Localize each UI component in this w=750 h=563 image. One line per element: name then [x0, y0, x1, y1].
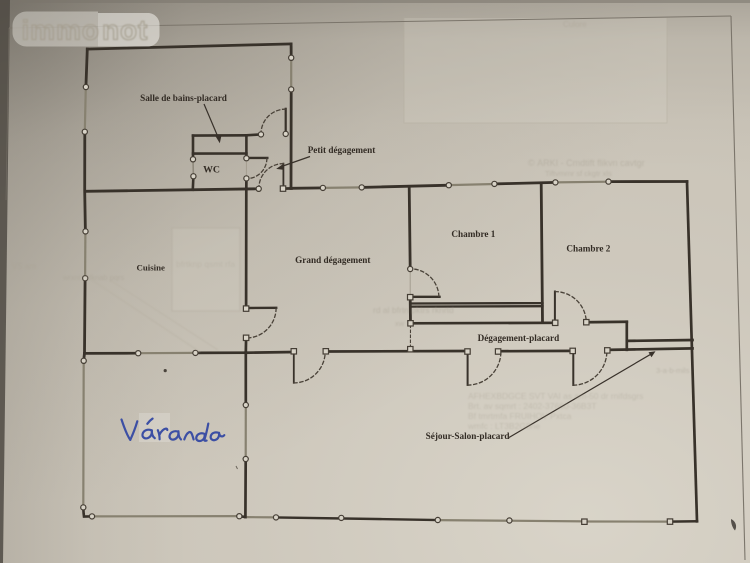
svg-text:Culore: Culore: [563, 20, 587, 29]
svg-text:Salle de bains-placard: Salle de bains-placard: [140, 93, 227, 103]
svg-text:3-a-b-mils: 3-a-b-mils: [656, 366, 690, 375]
svg-text:Brt. av sqmrt : 2402-37660-36B: Brt. av sqmrt : 2402-37660-36B3T: [468, 401, 597, 411]
svg-text:wmfc : LT3B2G8ne: wmfc : LT3B2G8ne: [467, 421, 540, 431]
svg-text:© ARKI - Cmdtift flikvn cavtgr: © ARKI - Cmdtift flikvn cavtgr: [528, 158, 645, 168]
svg-text:Chambre 1: Chambre 1: [451, 229, 495, 239]
svg-text:xw: xw: [395, 319, 405, 328]
svg-text:Chambre 2: Chambre 2: [566, 244, 610, 254]
svg-text:Bf tmrtmfa FRUIHOV Pxtca: Bf tmrtmfa FRUIHOV Pxtca: [468, 411, 572, 421]
svg-text:rd al bfrtn pktrs rknrtd: rd al bfrtn pktrs rknrtd: [373, 305, 454, 315]
svg-text:Petit dégagement: Petit dégagement: [308, 145, 377, 155]
svg-text:immo: immo: [22, 15, 100, 46]
svg-text:Séjour-Salon-placard: Séjour-Salon-placard: [426, 431, 510, 441]
svg-text:VS am: VS am: [12, 262, 36, 271]
svg-text:Dégagement-placard: Dégagement-placard: [478, 333, 560, 343]
svg-text:AFHEXBDGCE SVT VAI as am-50 dr: AFHEXBDGCE SVT VAI as am-50 dr rnifdsgrs: [468, 391, 643, 401]
svg-text:Cuisine: Cuisine: [137, 263, 165, 273]
svg-text:WC: WC: [203, 165, 220, 176]
svg-text:not: not: [102, 15, 148, 46]
svg-text:Tiftvmrnr sf ckgtr xls: Tiftvmrnr sf ckgtr xls: [545, 169, 612, 178]
svg-text:Grand dégagement: Grand dégagement: [295, 255, 371, 265]
